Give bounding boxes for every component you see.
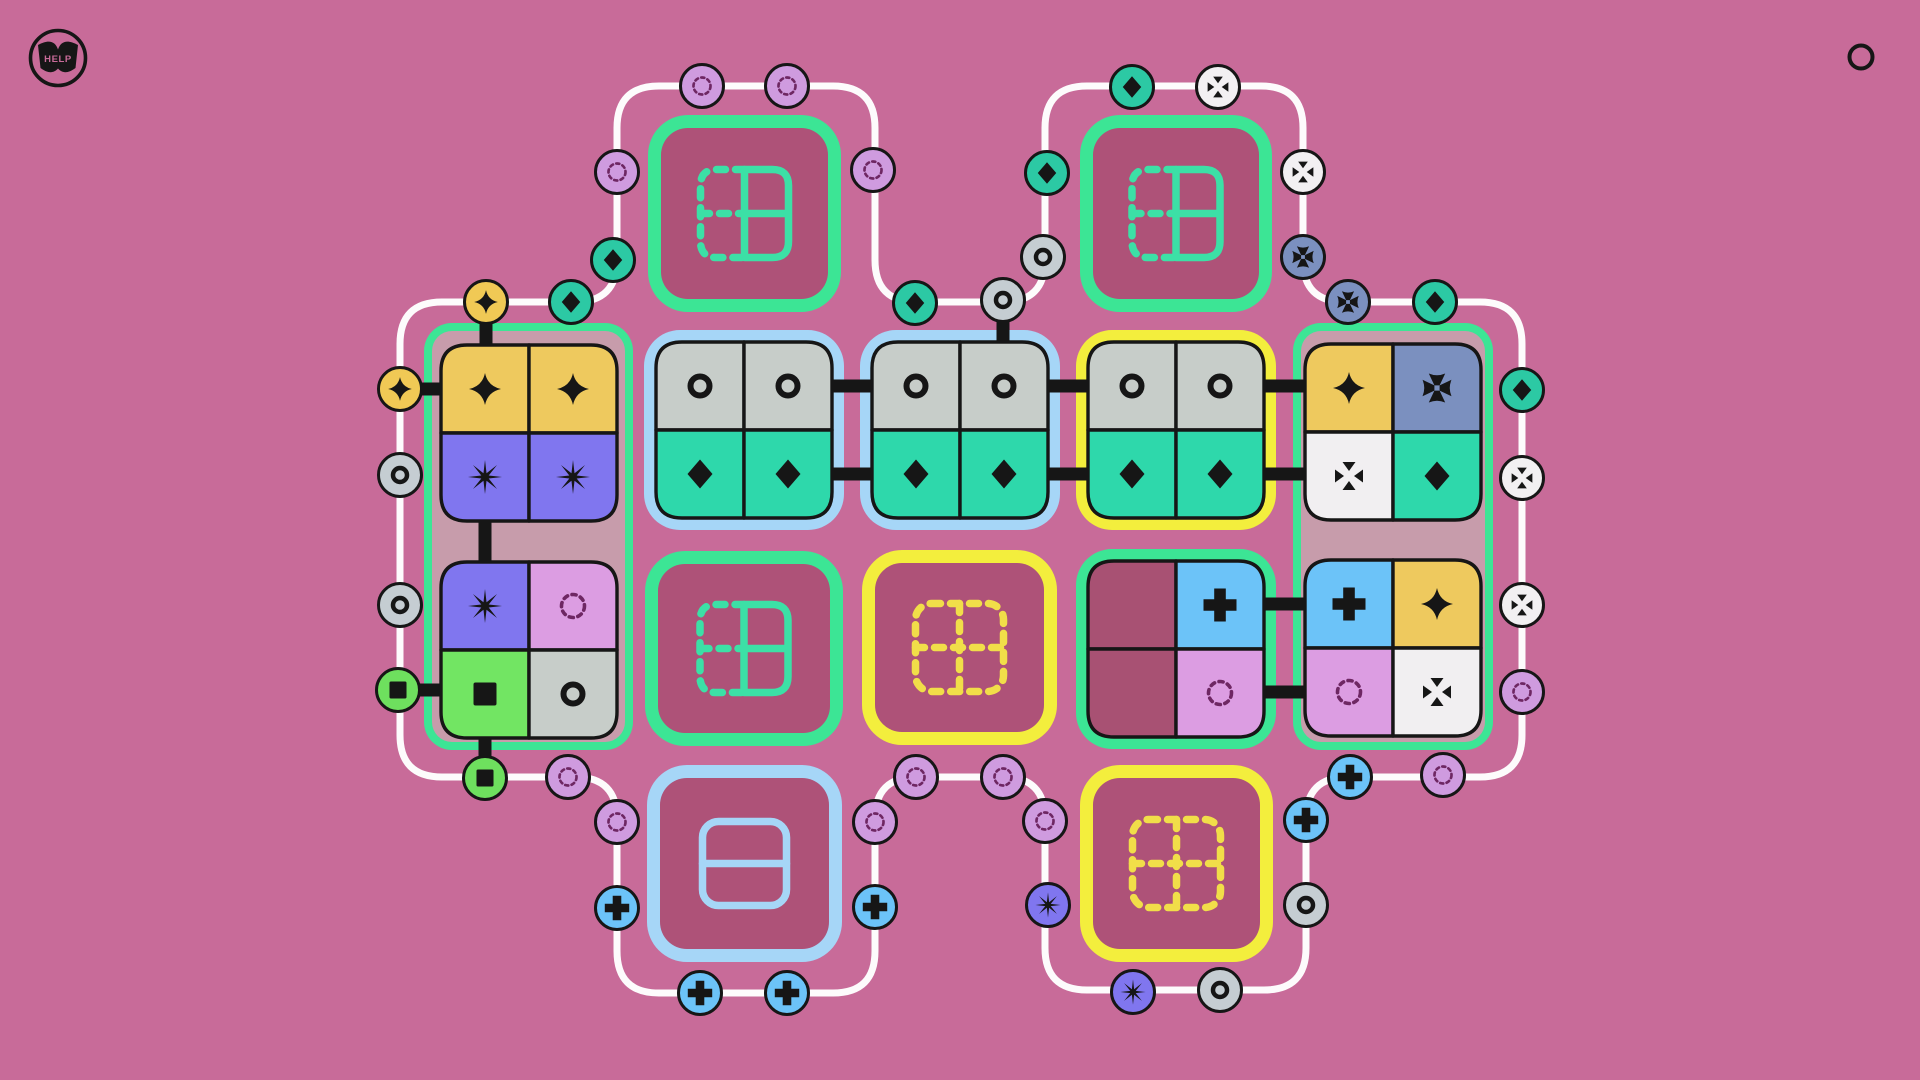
badge-diamond xyxy=(1501,369,1544,412)
square-icon xyxy=(476,769,493,786)
badge-plus xyxy=(1285,799,1328,842)
badge-dashed xyxy=(854,801,897,844)
badge-plus xyxy=(596,887,639,930)
badge-ring xyxy=(1285,884,1328,927)
badge-diamond xyxy=(894,282,937,325)
badge-dashed xyxy=(895,756,938,799)
piece-mixed-right-bottom[interactable] xyxy=(1305,560,1481,736)
target-block-mid-left[interactable] xyxy=(645,551,843,746)
burst-icon xyxy=(1120,979,1145,1004)
cell-ring[interactable] xyxy=(872,342,960,430)
badge-ring xyxy=(379,454,422,497)
badge-cross xyxy=(1282,236,1325,279)
ring-icon xyxy=(1850,46,1873,69)
badge-dashed xyxy=(766,65,809,108)
badge-ring xyxy=(379,584,422,627)
help-button[interactable]: HELP xyxy=(20,20,96,96)
menu-ring-button[interactable] xyxy=(1836,32,1886,82)
cell-ring[interactable] xyxy=(656,342,744,430)
badge-star xyxy=(465,281,508,324)
badge-tri xyxy=(1501,457,1544,500)
badge-diamond xyxy=(1111,66,1154,109)
square-icon xyxy=(389,681,406,698)
badge-diamond xyxy=(550,281,593,324)
piece-half-empty[interactable] xyxy=(1088,561,1264,737)
badge-dashed xyxy=(852,149,895,192)
badge-tri xyxy=(1282,151,1325,194)
badge-diamond xyxy=(592,239,635,282)
cell-cross[interactable] xyxy=(1393,344,1481,432)
badge-ring xyxy=(982,279,1025,322)
target-block-bottom-right[interactable] xyxy=(1080,765,1273,962)
piece-star-burst[interactable] xyxy=(441,345,617,521)
badge-square xyxy=(464,757,507,800)
badge-dashed xyxy=(681,65,724,108)
target-block-top-left[interactable] xyxy=(648,115,841,312)
burst-icon xyxy=(468,589,502,623)
piece-mixed-right-top[interactable] xyxy=(1305,344,1481,520)
target-block-bottom-left[interactable] xyxy=(647,765,842,962)
badge-plus xyxy=(854,886,897,929)
cell-ring[interactable] xyxy=(960,342,1048,430)
cell-dashed[interactable] xyxy=(529,562,617,650)
cell-dashed[interactable] xyxy=(1176,649,1264,737)
piece-ring-diamond-3[interactable] xyxy=(1088,342,1264,518)
badge-dashed xyxy=(1501,671,1544,714)
badge-square xyxy=(377,669,420,712)
cell-ring[interactable] xyxy=(744,342,832,430)
cell-dashed[interactable] xyxy=(1305,648,1393,736)
target-block-top-right[interactable] xyxy=(1080,115,1272,312)
cell-empty[interactable] xyxy=(1088,561,1176,649)
badge-star xyxy=(379,368,422,411)
burst-icon xyxy=(556,460,590,494)
badge-dashed xyxy=(982,756,1025,799)
puzzle-board xyxy=(0,0,1920,1080)
badge-ring xyxy=(1199,969,1242,1012)
badge-plus xyxy=(679,972,722,1015)
cell-ring[interactable] xyxy=(1088,342,1176,430)
containers-layer xyxy=(424,115,1493,962)
cell-tri[interactable] xyxy=(1305,432,1393,520)
badge-plus xyxy=(766,972,809,1015)
cell-ring[interactable] xyxy=(529,650,617,738)
badge-burst xyxy=(1027,884,1070,927)
badge-diamond xyxy=(1026,152,1069,195)
badge-ring xyxy=(1022,236,1065,279)
badge-plus xyxy=(1329,756,1372,799)
help-label: HELP xyxy=(44,54,72,65)
badge-cross xyxy=(1327,281,1370,324)
badge-tri xyxy=(1501,584,1544,627)
cell-empty[interactable] xyxy=(1088,649,1176,737)
game-screen: HELP xyxy=(0,0,1920,1080)
target-block-mid-right[interactable] xyxy=(862,550,1057,745)
badge-diamond xyxy=(1414,281,1457,324)
cell-ring[interactable] xyxy=(1176,342,1264,430)
badge-dashed xyxy=(1422,754,1465,797)
piece-ring-diamond-1[interactable] xyxy=(656,342,832,518)
badge-burst xyxy=(1112,971,1155,1014)
burst-icon xyxy=(1035,892,1060,917)
badge-tri xyxy=(1197,66,1240,109)
badge-dashed xyxy=(1024,800,1067,843)
badge-dashed xyxy=(596,801,639,844)
cell-tri[interactable] xyxy=(1393,648,1481,736)
piece-ring-diamond-2[interactable] xyxy=(872,342,1048,518)
square-icon xyxy=(474,683,497,706)
burst-icon xyxy=(468,460,502,494)
piece-mixed-left[interactable] xyxy=(441,562,617,738)
badge-dashed xyxy=(596,151,639,194)
badge-dashed xyxy=(547,756,590,799)
